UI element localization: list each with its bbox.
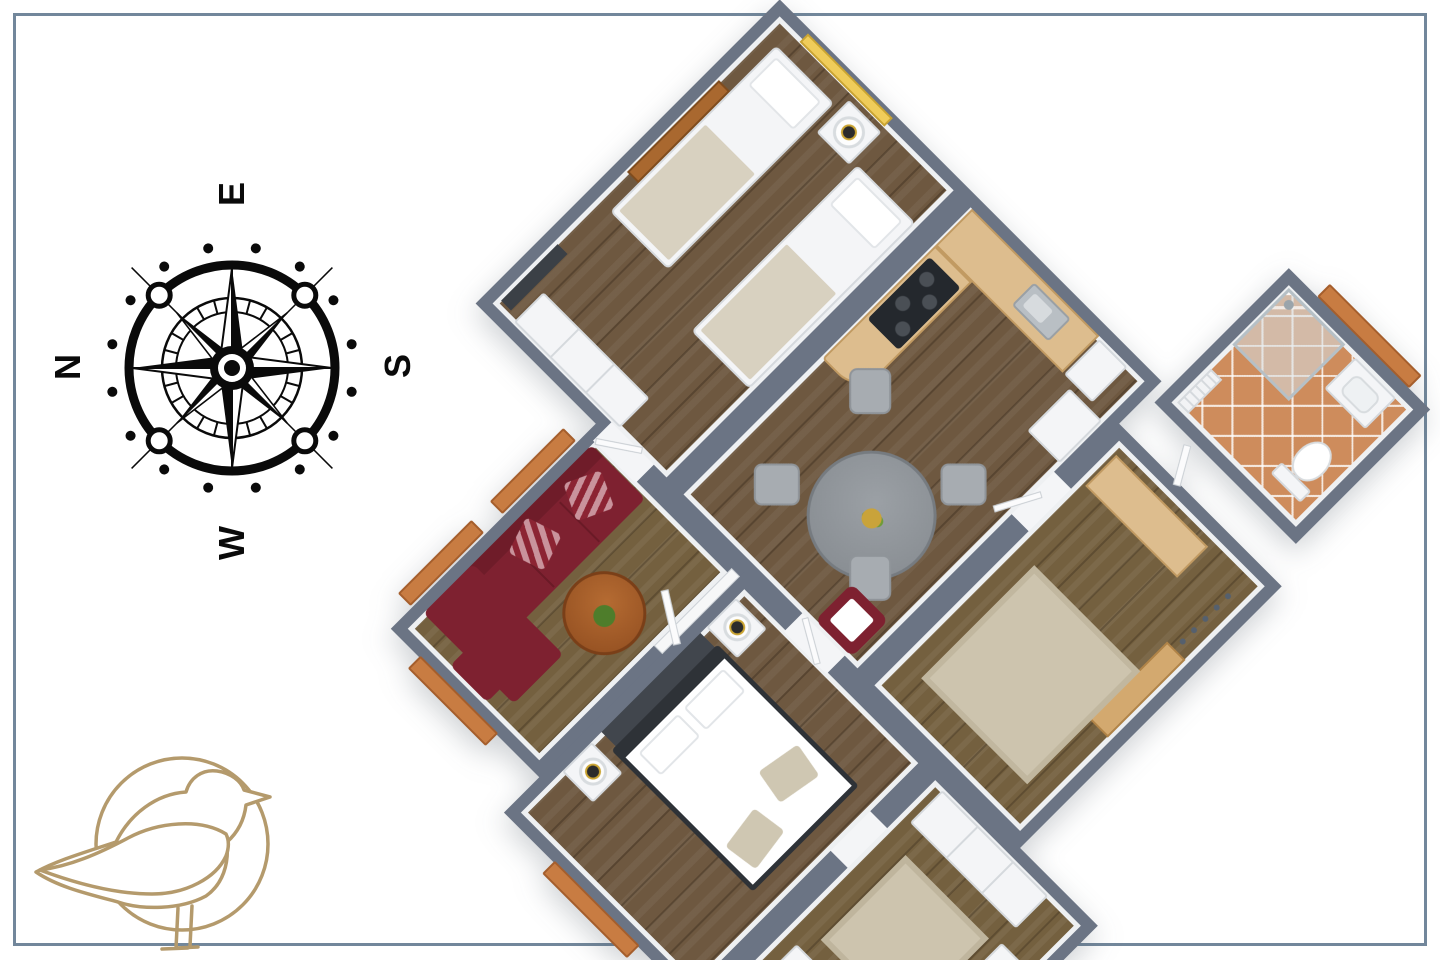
door-leaf xyxy=(1173,444,1192,487)
dining-chair xyxy=(849,368,891,414)
compass-label-east: E xyxy=(214,182,250,206)
dining-chair xyxy=(754,463,800,505)
compass-label-north: N xyxy=(50,354,86,380)
dining-chair xyxy=(941,463,987,505)
cushion xyxy=(725,808,784,869)
floorplan-poster: { "frame": {"border_color": "#72879b", "… xyxy=(0,0,1440,960)
cushion xyxy=(758,744,819,803)
seagull-logo xyxy=(30,742,290,960)
